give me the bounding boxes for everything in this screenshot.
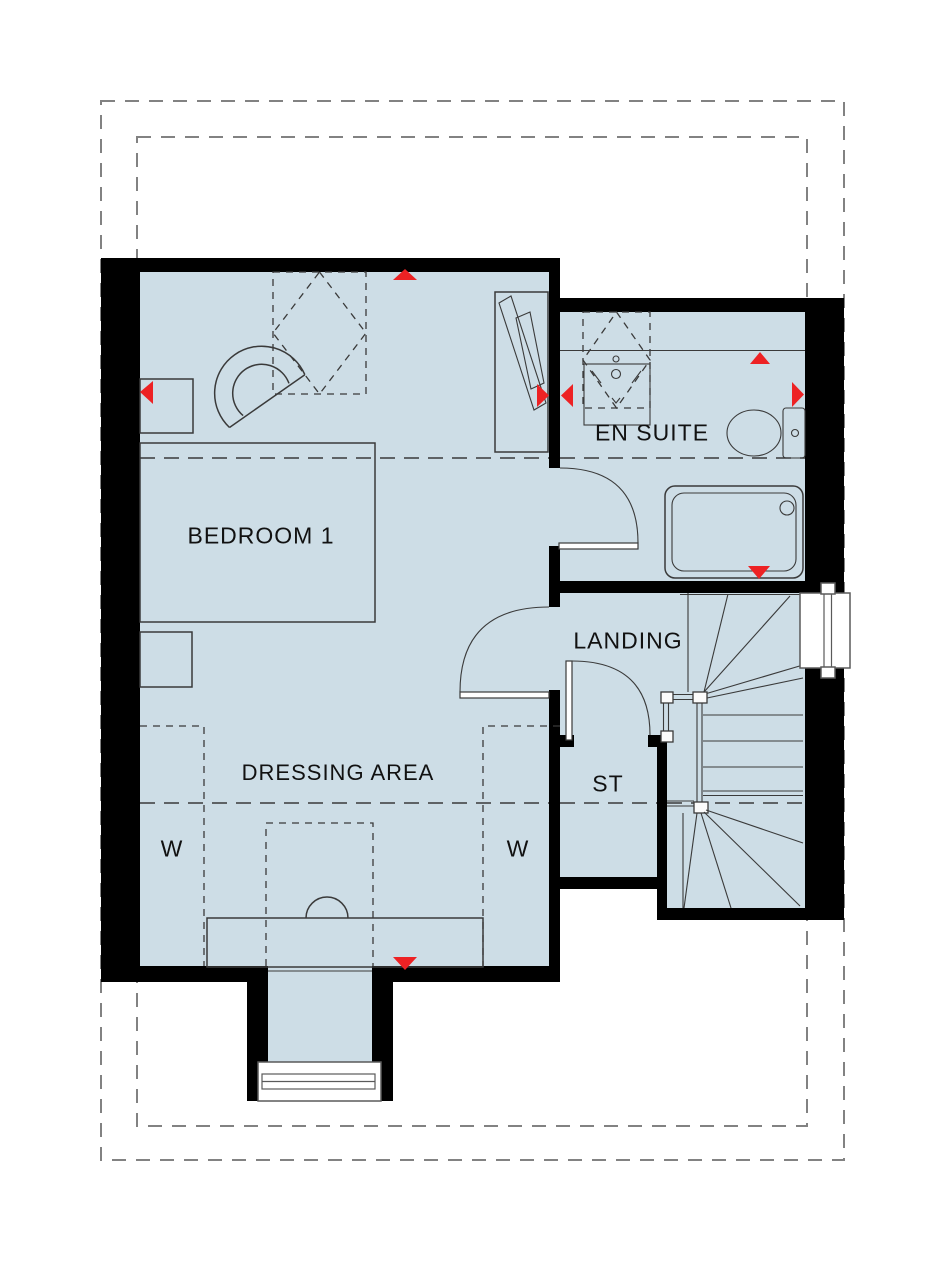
wall-top-bedroom [101, 258, 560, 272]
bedroom-door-opening [549, 607, 560, 690]
ensuite-floor [560, 312, 805, 581]
wall-right-lower [805, 668, 844, 920]
landing-window [800, 583, 850, 678]
newel-post [661, 731, 673, 742]
floor-plan-drawing [0, 0, 945, 1264]
storage-door-opening [574, 735, 648, 747]
bay-window [258, 1062, 381, 1101]
room-label-storage: ST [592, 771, 623, 798]
room-label-wardrobe-right: W [507, 836, 530, 863]
storage-floor [560, 747, 657, 877]
bedroom-dressing-floor [140, 272, 549, 966]
wall-bottom-left [101, 966, 268, 982]
room-floors [140, 272, 805, 1063]
wall-ensuite-bottom [549, 581, 805, 593]
wall-storage-bottom [549, 877, 667, 889]
newel-post [661, 692, 673, 703]
wall-right-upper [805, 298, 844, 593]
bay-floor [268, 966, 372, 1063]
wall-storage-stair [657, 735, 667, 920]
wall-bedroom-ensuite-upper [549, 272, 560, 468]
wall-stair-bottom [657, 908, 844, 920]
ensuite-door-opening [549, 468, 560, 546]
room-label-ensuite: EN SUITE [595, 420, 709, 447]
wall-top-ensuite [560, 298, 844, 312]
wall-dressing-right-b [549, 690, 560, 982]
wall-left [101, 258, 140, 982]
wall-bottom-right [372, 966, 560, 982]
floor-plan: BEDROOM 1 EN SUITE LANDING ST DRESSING A… [0, 0, 945, 1264]
room-label-dressing: DRESSING AREA [242, 760, 435, 786]
newel-post [693, 692, 707, 703]
wall-dressing-right-a [549, 593, 560, 607]
newel-post [694, 802, 708, 813]
room-label-landing: LANDING [573, 628, 682, 655]
room-label-wardrobe-left: W [161, 836, 184, 863]
room-label-bedroom: BEDROOM 1 [187, 523, 334, 550]
